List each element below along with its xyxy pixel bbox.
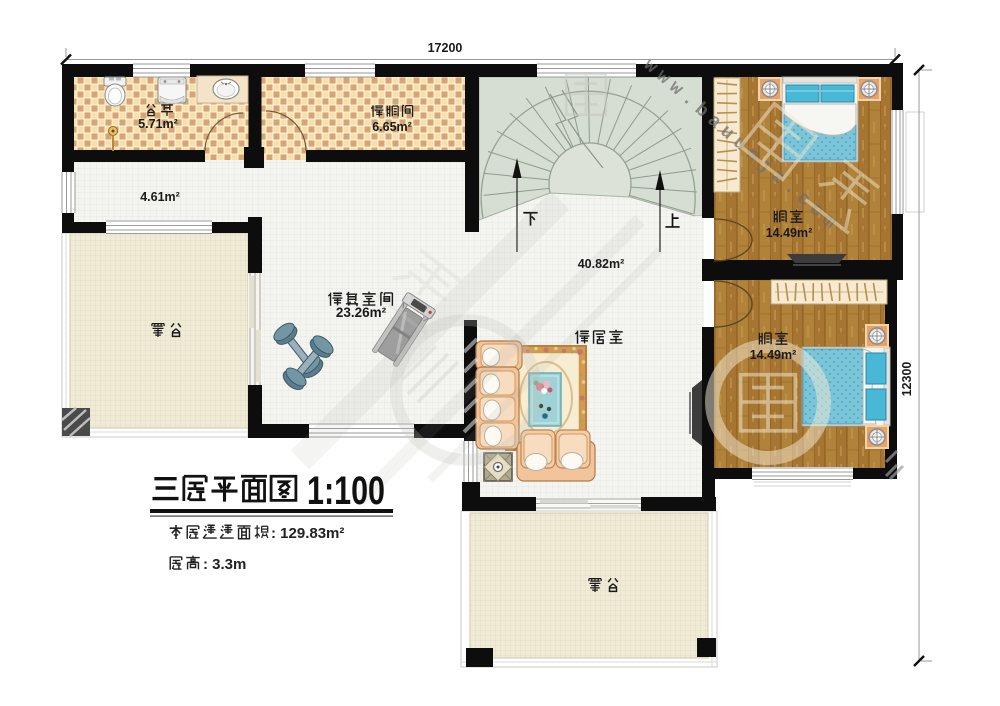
- svg-text:14.49m²: 14.49m²: [750, 348, 797, 362]
- svg-text:: 129.83m²: : 129.83m²: [271, 525, 344, 542]
- svg-text:17200: 17200: [428, 41, 463, 55]
- svg-text:12300: 12300: [900, 362, 914, 397]
- svg-text:40.82m²: 40.82m²: [578, 257, 625, 271]
- svg-text:: 3.3m: : 3.3m: [203, 556, 246, 573]
- svg-text:1:100: 1:100: [307, 469, 385, 513]
- svg-text:23.26m²: 23.26m²: [336, 305, 387, 320]
- svg-text:5.71m²: 5.71m²: [138, 117, 178, 131]
- svg-text:4.61m²: 4.61m²: [140, 190, 180, 204]
- svg-text:6.65m²: 6.65m²: [372, 120, 412, 134]
- svg-text:14.49m²: 14.49m²: [766, 226, 813, 240]
